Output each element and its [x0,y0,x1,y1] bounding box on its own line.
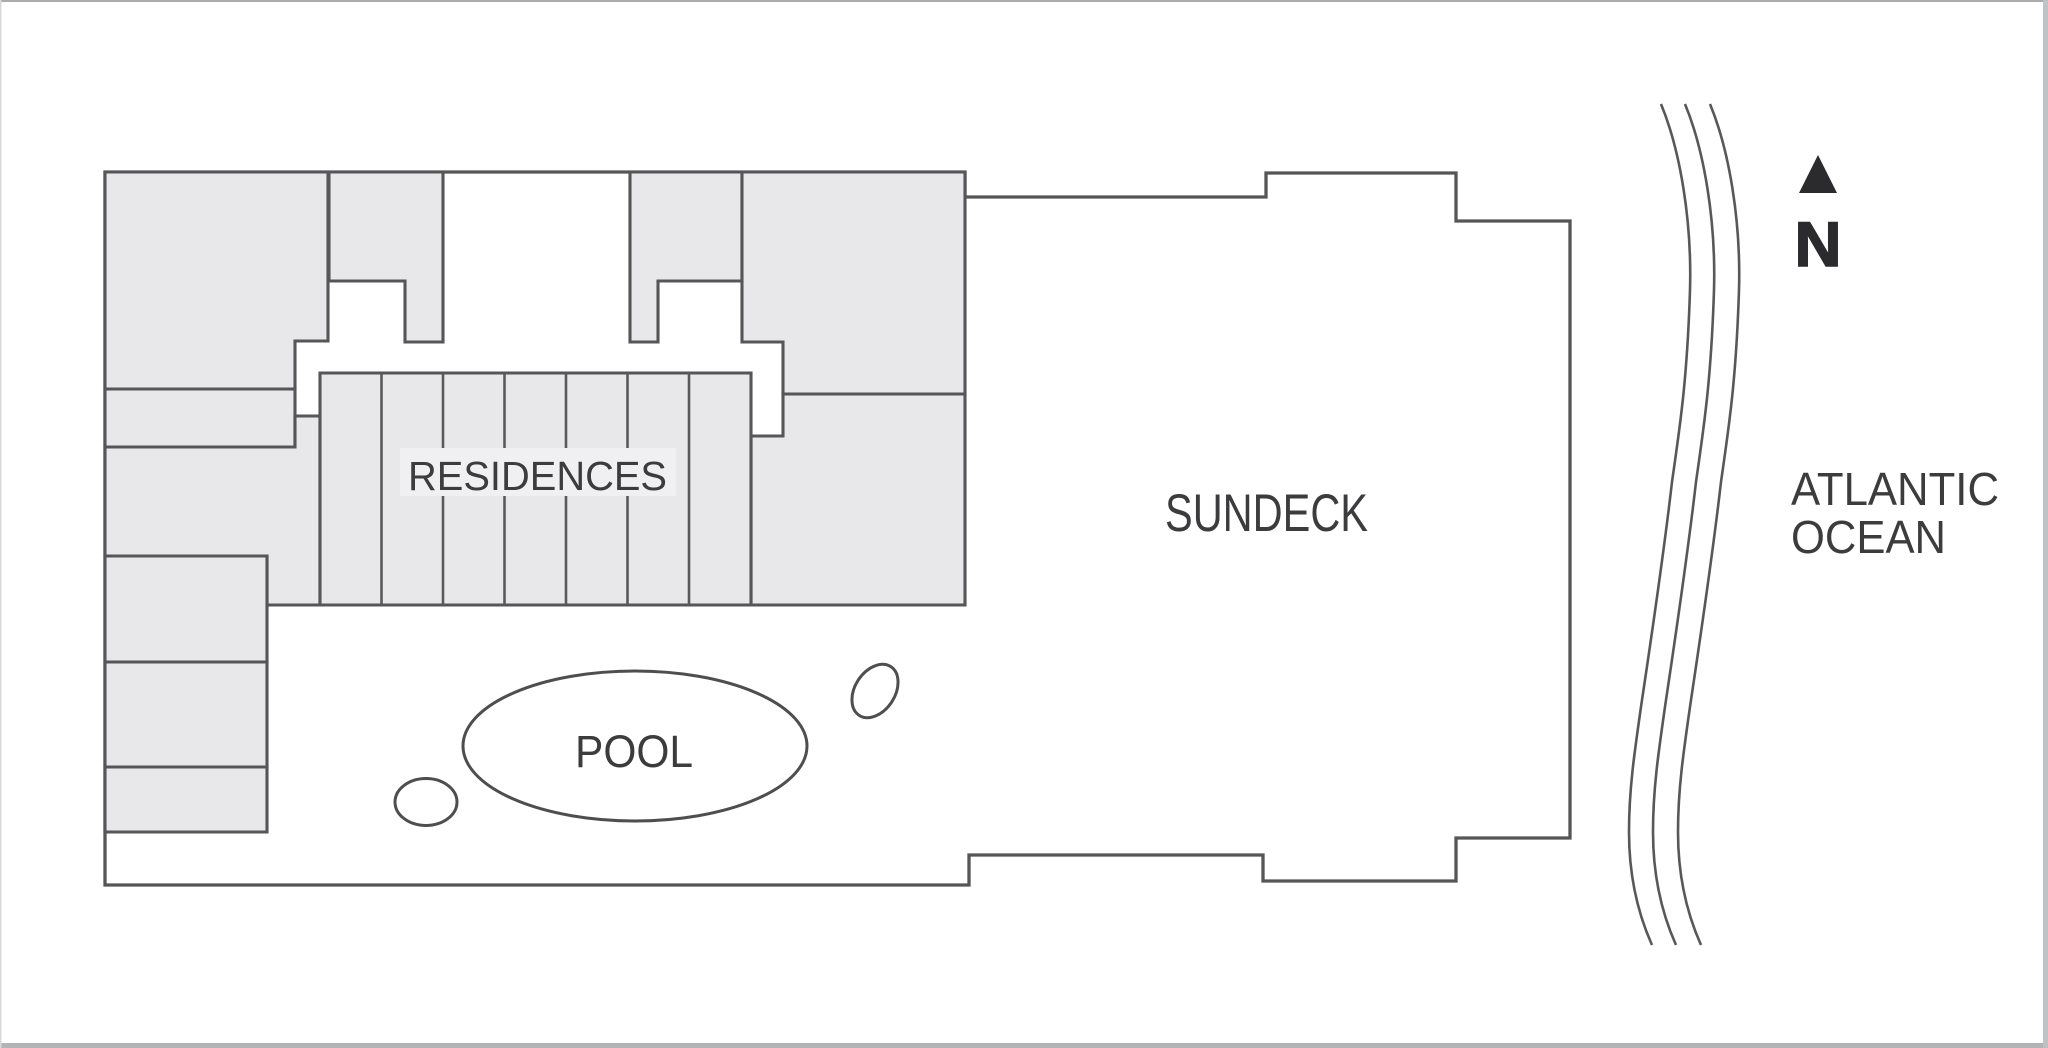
svg-text:ATLANTIC: ATLANTIC [1791,463,1999,515]
svg-text:SUNDECK: SUNDECK [1165,484,1368,543]
svg-text:RESIDENCES: RESIDENCES [408,453,667,499]
svg-text:N: N [1795,210,1842,280]
svg-text:POOL: POOL [575,726,693,777]
svg-text:OCEAN: OCEAN [1791,511,1946,563]
